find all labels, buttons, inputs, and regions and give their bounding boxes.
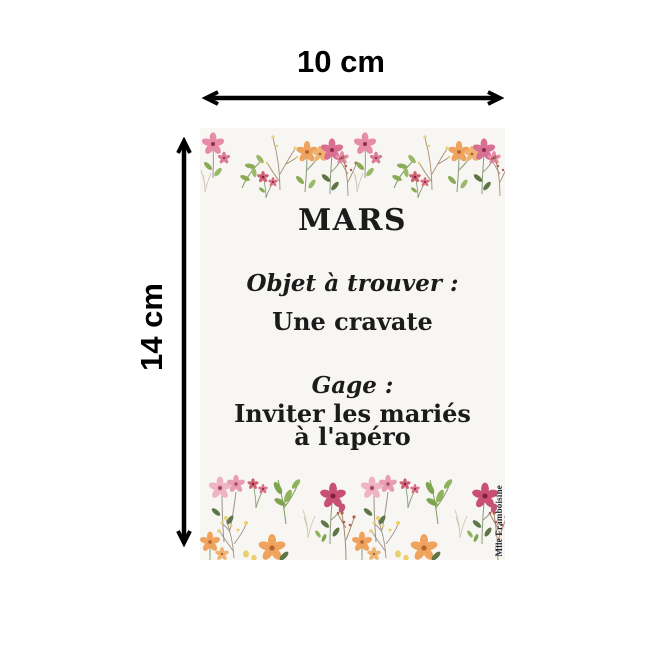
dare-text: Inviter les mariés à l'apéro [200,402,505,448]
find-heading: Objet à trouver : [200,270,505,297]
brand-watermark: Mlle Framboisine [494,485,504,556]
bottom-flower-border [200,468,505,560]
height-dimension-arrow [175,137,193,547]
dare-heading: Gage : [200,372,505,399]
dare-line-2: à l'apéro [200,425,505,448]
width-dimension-arrow [202,89,504,107]
width-dimension-label: 10 cm [191,44,491,80]
month-title: MARS [200,203,505,238]
top-flower-border [200,128,505,198]
game-card: MARS Objet à trouver : Une cravate Gage … [200,128,505,560]
height-dimension-label: 14 cm [134,257,172,397]
product-image: 10 cm 14 cm MARS Objet à trouver : Une c… [0,0,650,650]
find-item: Une cravate [200,307,505,336]
